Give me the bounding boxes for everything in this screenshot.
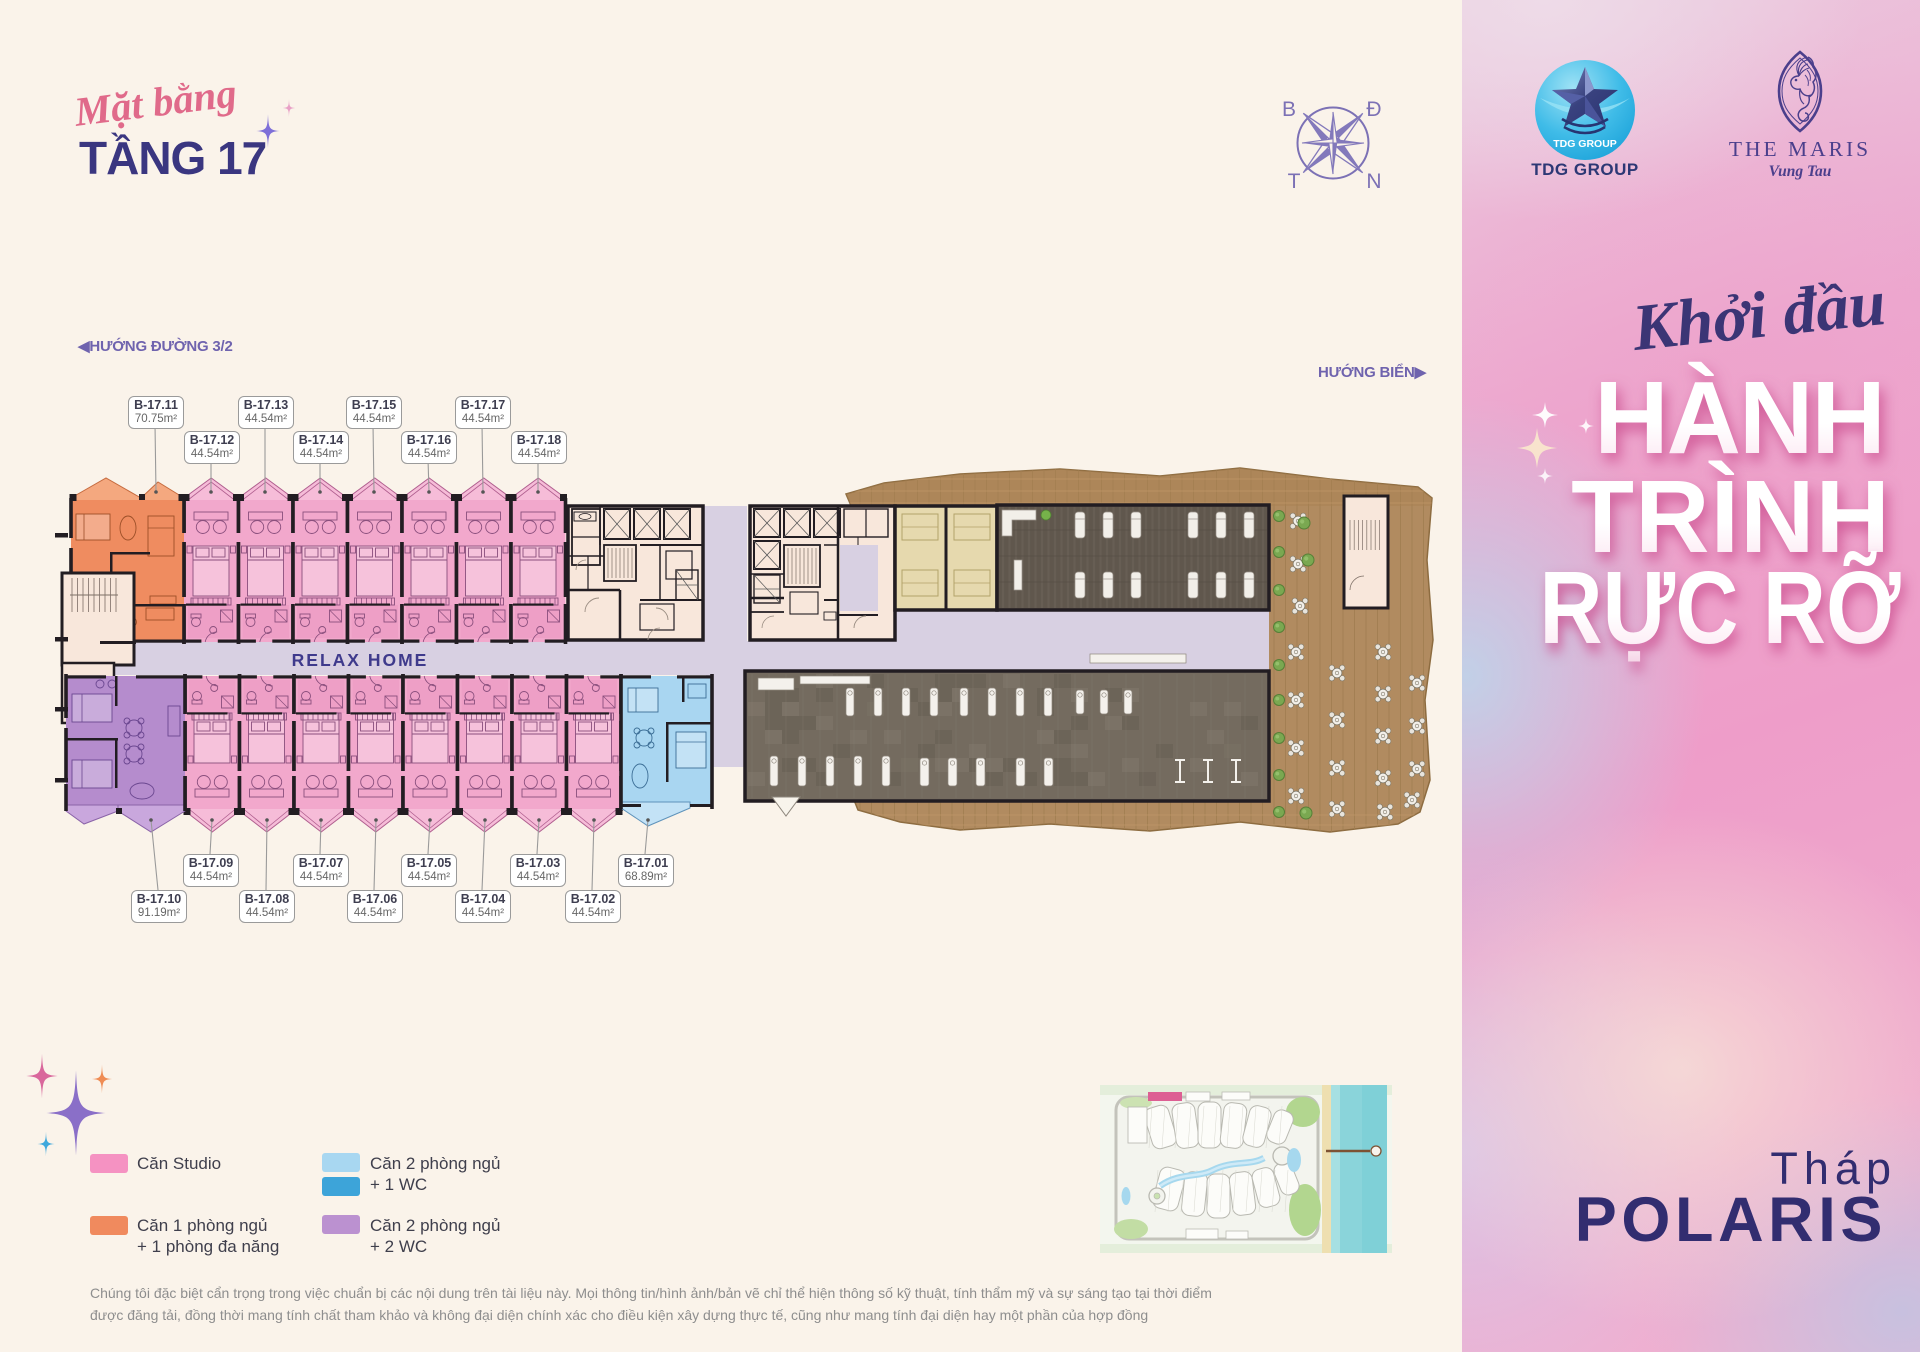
- svg-text:T: T: [1288, 170, 1301, 193]
- svg-text:N: N: [1366, 170, 1381, 193]
- svg-text:Đ: Đ: [1366, 98, 1381, 121]
- svg-text:TDG GROUP: TDG GROUP: [1531, 160, 1638, 179]
- svg-text:TDG GROUP: TDG GROUP: [1553, 138, 1617, 150]
- svg-text:THE MARIS: THE MARIS: [1729, 137, 1871, 161]
- svg-text:B: B: [1282, 98, 1296, 121]
- svg-text:Vung Tau: Vung Tau: [1769, 163, 1832, 180]
